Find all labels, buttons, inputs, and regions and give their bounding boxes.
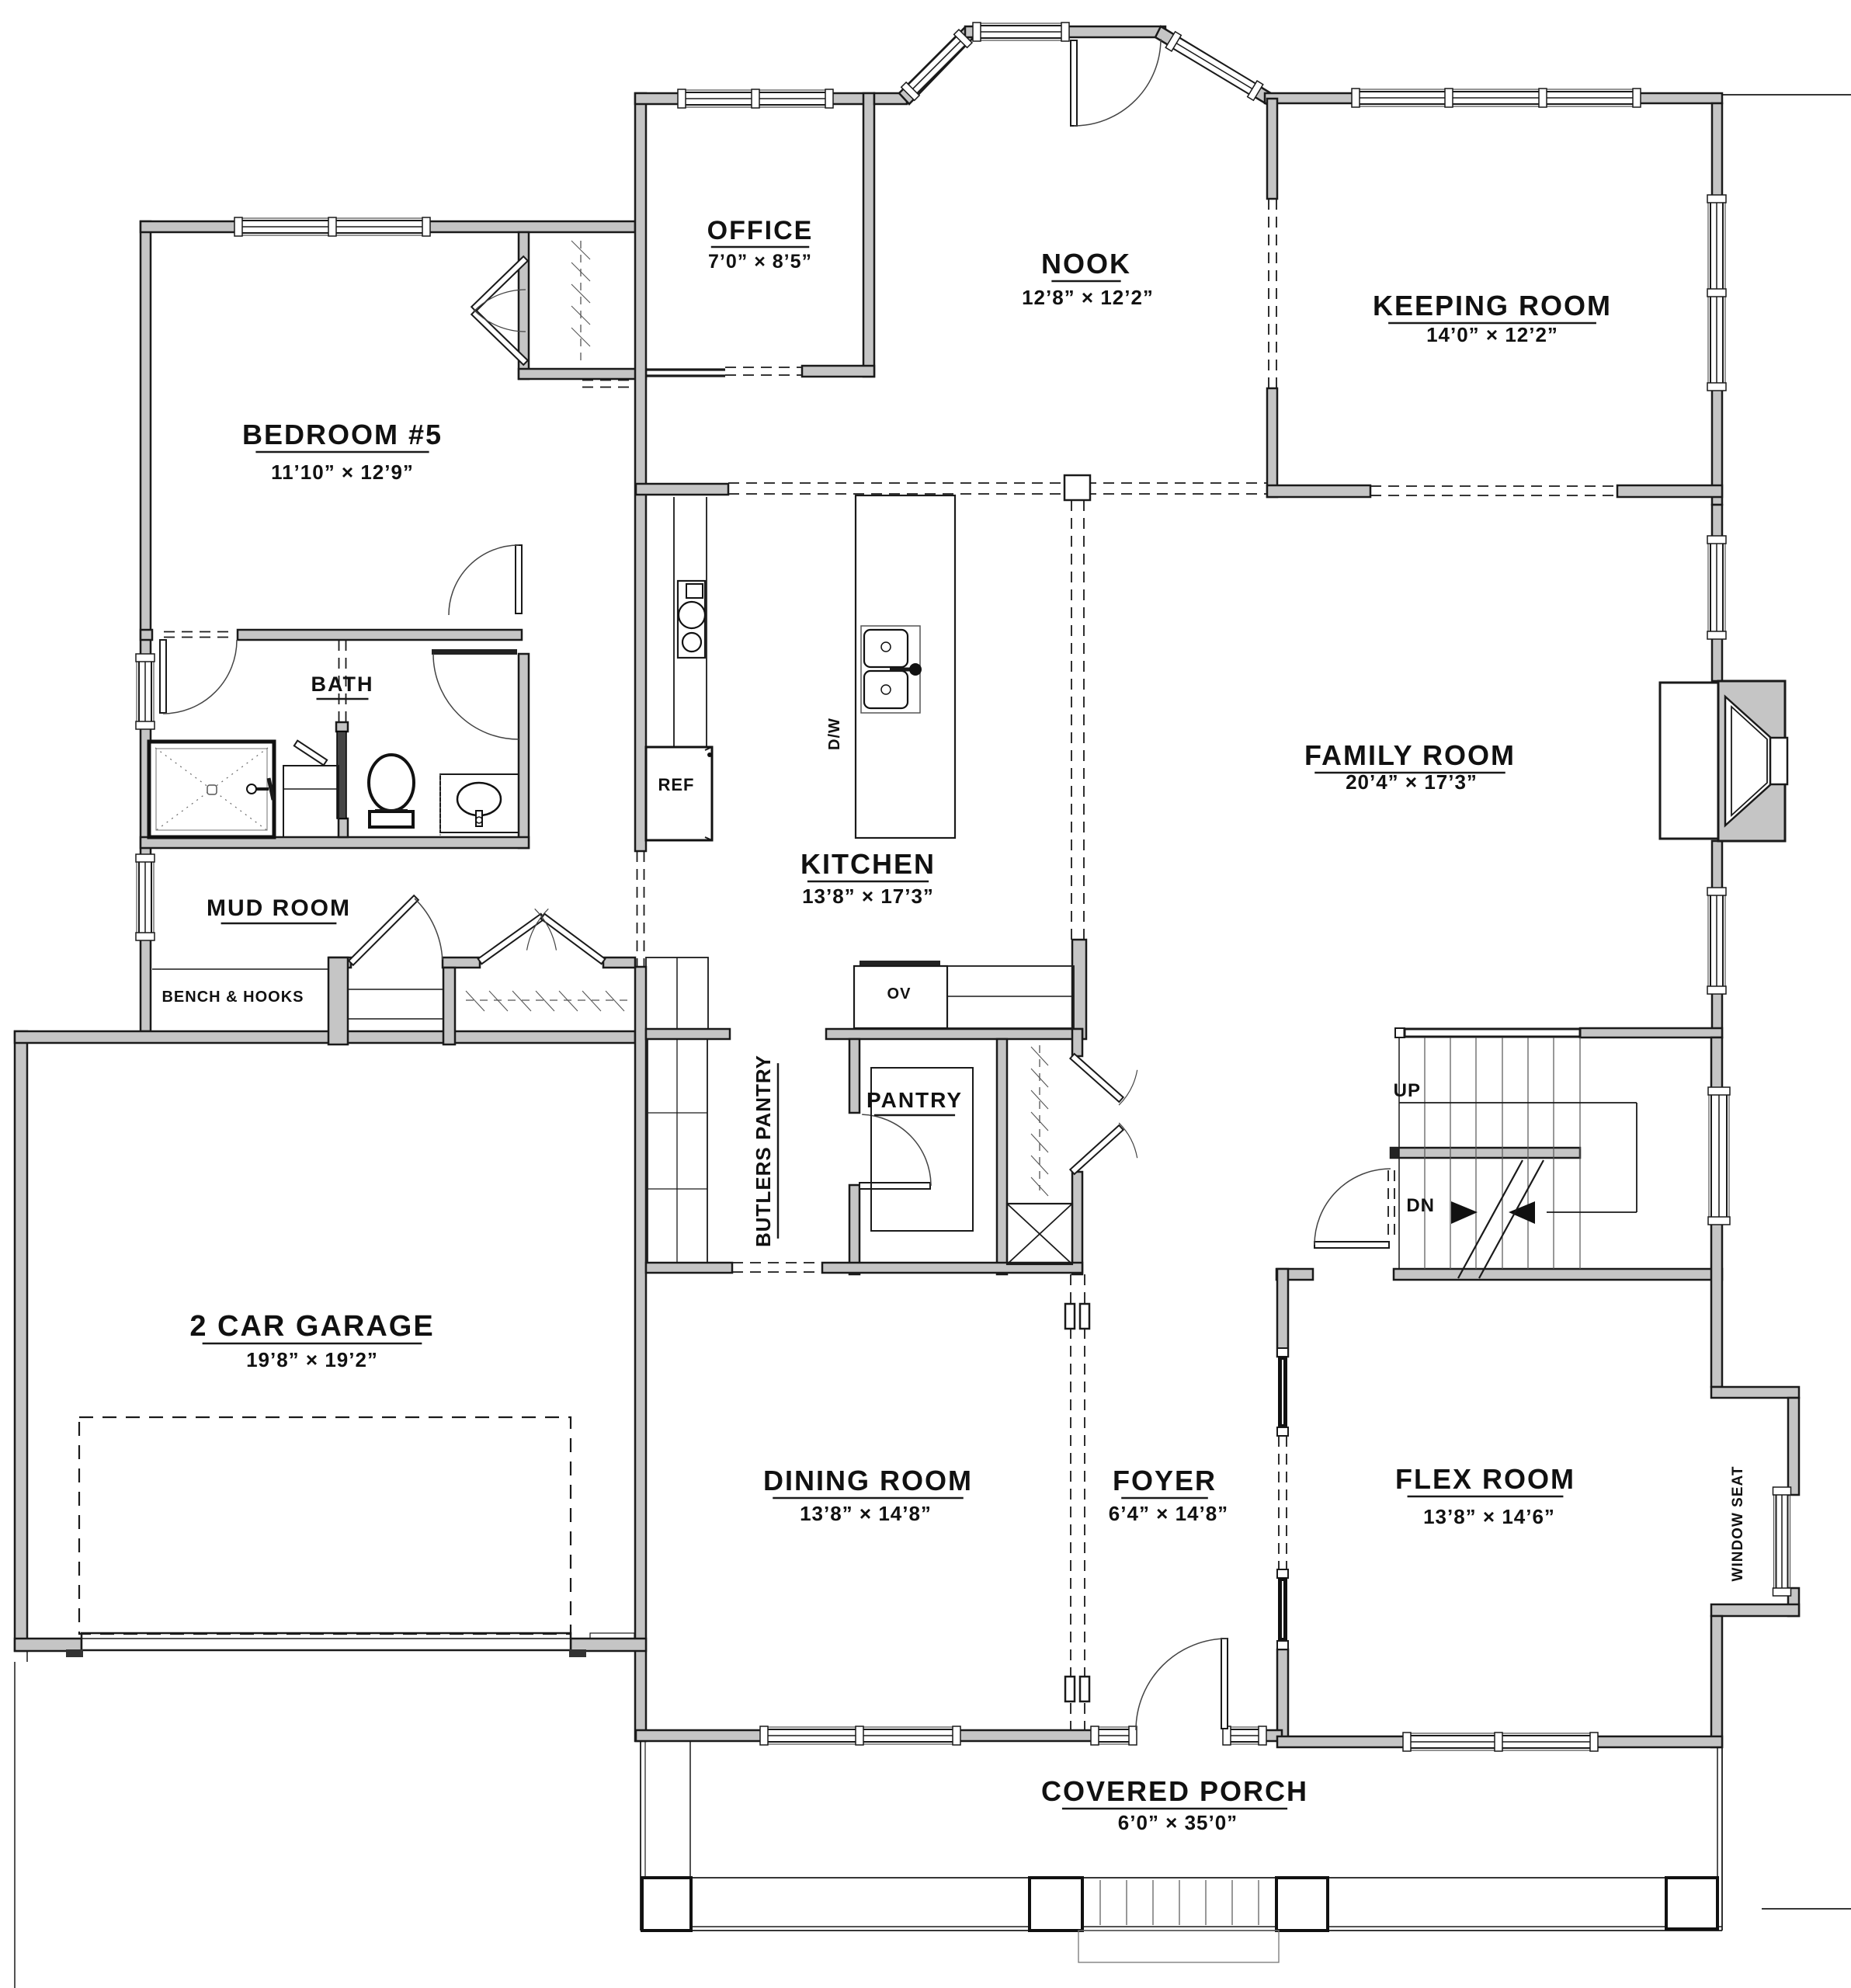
svg-text:OV: OV (887, 985, 912, 1003)
svg-text:12’8” × 12’2”: 12’8” × 12’2” (1022, 286, 1154, 309)
svg-text:FAMILY ROOM: FAMILY ROOM (1304, 739, 1516, 771)
svg-text:6’4” × 14’8”: 6’4” × 14’8” (1109, 1502, 1228, 1525)
svg-text:11’10” × 12’9”: 11’10” × 12’9” (271, 461, 414, 484)
svg-text:D/W: D/W (826, 718, 843, 750)
svg-text:13’8” × 14’8”: 13’8” × 14’8” (800, 1502, 932, 1525)
svg-text:2 CAR GARAGE: 2 CAR GARAGE (189, 1310, 434, 1343)
svg-text:19’8” × 19’2”: 19’8” × 19’2” (246, 1348, 378, 1371)
svg-text:6’0” × 35’0”: 6’0” × 35’0” (1118, 1811, 1238, 1834)
svg-text:BENCH & HOOKS: BENCH & HOOKS (161, 989, 304, 1006)
svg-text:NOOK: NOOK (1041, 248, 1131, 280)
svg-text:KEEPING ROOM: KEEPING ROOM (1373, 290, 1612, 321)
svg-text:UP: UP (1394, 1080, 1421, 1101)
svg-text:FOYER: FOYER (1113, 1465, 1217, 1496)
svg-text:BATH: BATH (311, 673, 374, 696)
svg-text:REF: REF (658, 775, 695, 794)
svg-text:WINDOW SEAT: WINDOW SEAT (1730, 1466, 1746, 1582)
svg-text:7’0” × 8’5”: 7’0” × 8’5” (708, 251, 812, 273)
svg-text:COVERED PORCH: COVERED PORCH (1041, 1775, 1308, 1807)
svg-text:BUTLERS PANTRY: BUTLERS PANTRY (752, 1055, 775, 1247)
svg-text:DINING ROOM: DINING ROOM (763, 1465, 973, 1496)
svg-text:OFFICE: OFFICE (707, 216, 814, 245)
svg-text:13’8” × 17’3”: 13’8” × 17’3” (802, 885, 934, 908)
svg-text:14’0” × 12’2”: 14’0” × 12’2” (1426, 323, 1558, 346)
svg-text:MUD ROOM: MUD ROOM (207, 895, 351, 921)
svg-text:BEDROOM #5: BEDROOM #5 (242, 419, 443, 450)
svg-text:13’8” × 14’6”: 13’8” × 14’6” (1423, 1505, 1555, 1528)
svg-text:KITCHEN: KITCHEN (800, 848, 936, 880)
svg-text:PANTRY: PANTRY (866, 1088, 963, 1112)
svg-text:FLEX ROOM: FLEX ROOM (1395, 1463, 1575, 1495)
svg-text:DN: DN (1406, 1195, 1435, 1216)
svg-text:20’4” × 17’3”: 20’4” × 17’3” (1346, 770, 1478, 794)
